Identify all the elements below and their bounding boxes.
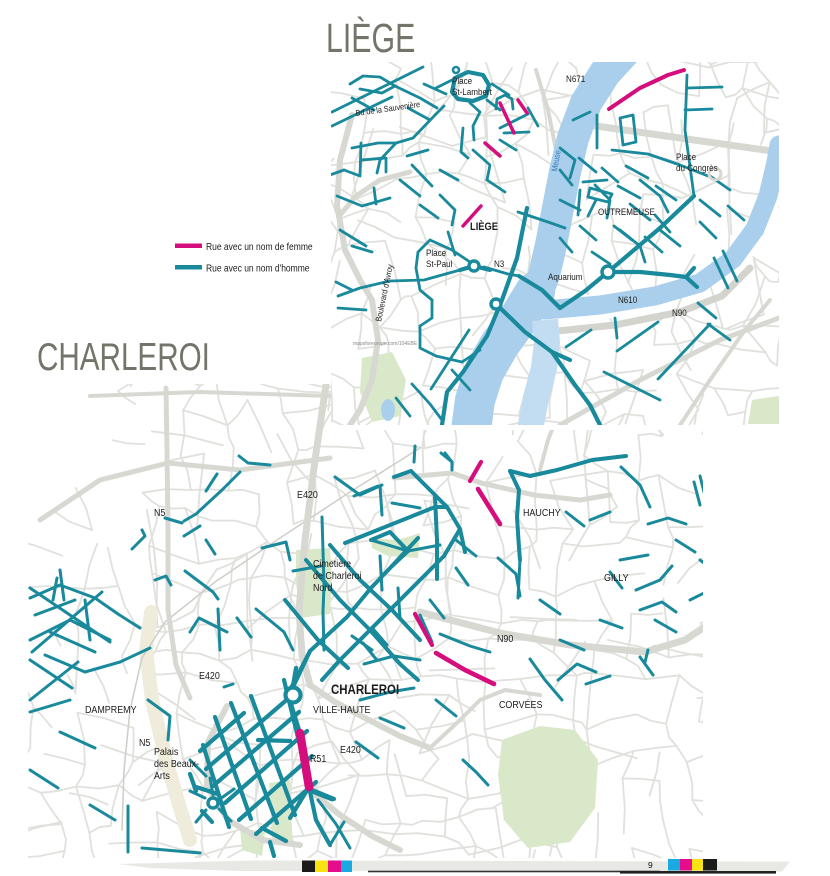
svg-text:E420: E420 — [199, 670, 220, 682]
svg-text:N5: N5 — [154, 507, 165, 519]
svg-text:St-Lambert: St-Lambert — [452, 86, 492, 97]
svg-text:E420: E420 — [297, 489, 318, 501]
svg-text:Place: Place — [452, 75, 472, 86]
svg-text:Place: Place — [426, 247, 446, 258]
svg-text:des Beaux-: des Beaux- — [154, 758, 199, 770]
svg-text:R51: R51 — [310, 753, 326, 765]
svg-text:Rue avec un nom d'homme: Rue avec un nom d'homme — [206, 263, 310, 274]
svg-text:LIÈGE: LIÈGE — [470, 219, 498, 233]
svg-text:VILLE-HAUTE: VILLE-HAUTE — [313, 704, 371, 716]
svg-text:Arts: Arts — [154, 770, 170, 782]
svg-text:Place: Place — [676, 151, 696, 162]
svg-text:DAMPREMY: DAMPREMY — [85, 704, 137, 716]
svg-text:Cimetière: Cimetière — [313, 558, 351, 570]
svg-text:N90: N90 — [672, 307, 687, 318]
svg-text:du Congrès: du Congrès — [676, 162, 718, 173]
svg-text:St-Paul: St-Paul — [426, 258, 452, 269]
svg-text:N5: N5 — [139, 737, 150, 749]
svg-text:de Charleroi: de Charleroi — [313, 570, 362, 582]
svg-text:Nord: Nord — [313, 582, 332, 594]
svg-text:HAUCHY: HAUCHY — [523, 507, 561, 519]
svg-text:CHARLEROI: CHARLEROI — [37, 336, 210, 379]
svg-text:Aquarium: Aquarium — [548, 271, 582, 282]
svg-text:9: 9 — [648, 860, 653, 870]
svg-text:N3: N3 — [494, 258, 504, 269]
svg-text:OUTREMEUSE: OUTREMEUSE — [598, 206, 655, 217]
svg-text:N671: N671 — [566, 73, 585, 84]
svg-text:CHARLEROI: CHARLEROI — [331, 682, 399, 697]
svg-text:Palais: Palais — [154, 746, 178, 758]
svg-text:N90: N90 — [497, 633, 514, 645]
svg-text:N610: N610 — [618, 294, 637, 305]
svg-text:GILLY: GILLY — [604, 572, 629, 584]
svg-text:CORVÉES: CORVÉES — [499, 699, 543, 711]
svg-text:E420: E420 — [340, 744, 361, 756]
svg-text:mapsforeurope.com/104EBE: mapsforeurope.com/104EBE — [353, 341, 418, 347]
svg-text:LIÈGE: LIÈGE — [326, 14, 415, 61]
svg-text:Rue avec un nom de femme: Rue avec un nom de femme — [206, 241, 313, 252]
